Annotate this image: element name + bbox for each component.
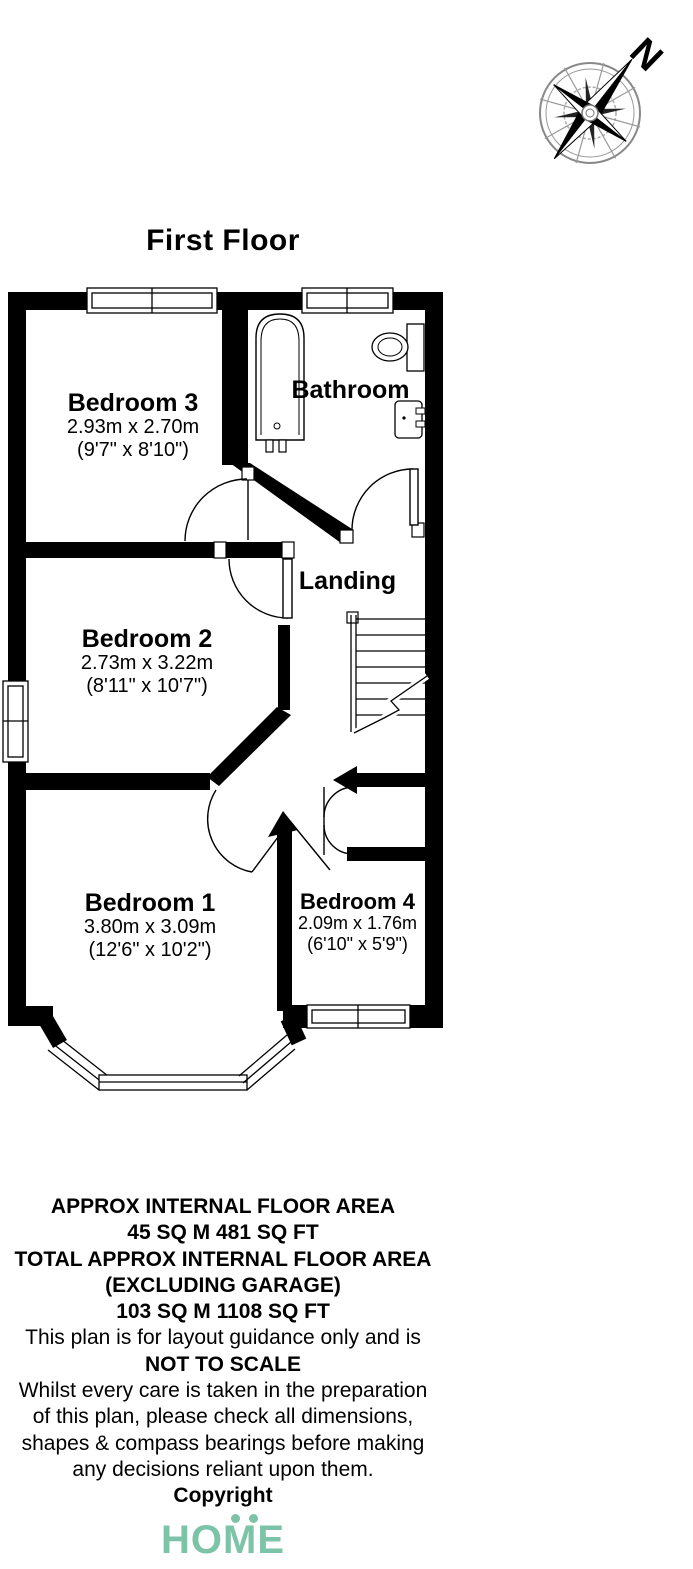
footer-line: APPROX INTERNAL FLOOR AREA	[0, 1194, 446, 1220]
floorplan-page: { "title": "First Floor", "compass": { "…	[0, 0, 693, 1569]
room-dim-metric: 2.09m x 1.76m	[285, 913, 430, 934]
footer-line: (EXCLUDING GARAGE)	[0, 1273, 446, 1299]
footer-line: Copyright	[0, 1483, 446, 1509]
bay-window	[48, 1035, 295, 1090]
room-name: Bedroom 2	[37, 626, 257, 652]
footer-line: 103 SQ M 1108 SQ FT	[0, 1299, 446, 1325]
room-name: Bedroom 1	[40, 890, 260, 916]
window-bedroom4	[307, 1005, 410, 1028]
window-bathroom	[302, 288, 393, 313]
room-name: Landing	[255, 568, 440, 594]
door-bedroom3	[185, 479, 248, 541]
sink	[395, 401, 425, 438]
room-name: Bathroom	[258, 377, 443, 403]
home-logo: HOME	[0, 1518, 446, 1563]
room-label-bedroom1: Bedroom 1 3.80m x 3.09m (12'6" x 10'2")	[40, 890, 260, 962]
logo-m-dot-icon	[231, 1514, 240, 1523]
door-bedroom1	[208, 790, 330, 872]
footer-line: 45 SQ M 481 SQ FT	[0, 1220, 446, 1246]
window-bedroom3	[87, 288, 217, 313]
footer-line: any decisions reliant upon them.	[0, 1457, 446, 1483]
footer-line: This plan is for layout guidance only an…	[0, 1325, 446, 1351]
footer-line: of this plan, please check all dimension…	[0, 1404, 446, 1430]
door-bedroom4	[324, 787, 353, 855]
room-dim-imperial: (12'6" x 10'2")	[40, 939, 260, 962]
room-dim-metric: 2.93m x 2.70m	[23, 416, 243, 439]
compass-rose-graphic: N	[515, 25, 690, 200]
room-name: Bedroom 3	[23, 390, 243, 416]
room-label-landing: Landing	[255, 568, 440, 594]
room-dim-imperial: (9'7" x 8'10")	[23, 439, 243, 462]
footer-line: shapes & compass bearings before making	[0, 1431, 446, 1457]
room-dim-metric: 2.73m x 3.22m	[37, 652, 257, 675]
room-name: Bedroom 4	[285, 890, 430, 913]
floorplan-drawing: Bedroom 3 2.93m x 2.70m (9'7" x 8'10") B…	[0, 280, 460, 1110]
door-bathroom	[352, 469, 418, 530]
room-label-bedroom3: Bedroom 3 2.93m x 2.70m (9'7" x 8'10")	[23, 390, 243, 462]
room-label-bedroom2: Bedroom 2 2.73m x 3.22m (8'11" x 10'7")	[37, 626, 257, 698]
footer-line: Whilst every care is taken in the prepar…	[0, 1378, 446, 1404]
page-title: First Floor	[0, 224, 446, 258]
compass-north-label: N	[622, 30, 671, 79]
room-label-bathroom: Bathroom	[258, 377, 443, 403]
room-dim-imperial: (6'10" x 5'9")	[285, 934, 430, 955]
room-label-bedroom4: Bedroom 4 2.09m x 1.76m (6'10" x 5'9")	[285, 890, 430, 955]
logo-m-dot-icon	[249, 1514, 258, 1523]
footer-line: NOT TO SCALE	[0, 1352, 446, 1378]
room-dim-imperial: (8'11" x 10'7")	[37, 675, 257, 698]
compass-rose: N	[515, 25, 690, 200]
window-bedroom2	[3, 681, 28, 762]
stair-direction-arrows	[268, 766, 357, 837]
footer-line: TOTAL APPROX INTERNAL FLOOR AREA	[0, 1247, 446, 1273]
footer-disclaimer: APPROX INTERNAL FLOOR AREA 45 SQ M 481 S…	[0, 1194, 446, 1510]
stairs	[351, 615, 427, 733]
room-dim-metric: 3.80m x 3.09m	[40, 916, 260, 939]
toilet	[372, 324, 424, 371]
